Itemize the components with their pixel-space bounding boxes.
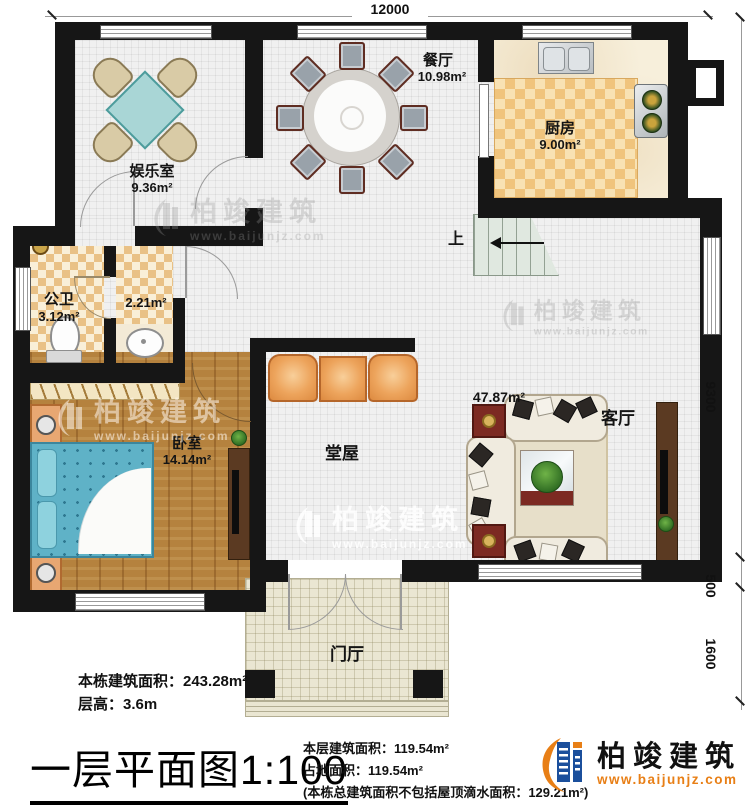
door-leaf bbox=[400, 574, 402, 629]
cushion bbox=[471, 497, 492, 518]
door-leaf bbox=[74, 276, 110, 278]
dimension-tick bbox=[47, 10, 57, 20]
room-label-foyer: 门厅 bbox=[287, 646, 407, 665]
column bbox=[413, 670, 443, 698]
window bbox=[478, 564, 642, 580]
dimension-tick bbox=[735, 582, 745, 592]
plant bbox=[531, 461, 563, 493]
room-area-storage: 2.21m² bbox=[86, 296, 206, 310]
plan-title: 一层平面图1:100 bbox=[30, 736, 348, 805]
stairs-up-label: 上 bbox=[440, 231, 472, 249]
chair bbox=[339, 166, 365, 194]
wall bbox=[55, 22, 75, 230]
dining-table-center bbox=[340, 106, 364, 130]
door-leaf bbox=[288, 574, 290, 629]
total-floor-area: 本栋建筑面积：243.28m² bbox=[78, 670, 247, 693]
room-area-dining: 10.98m² bbox=[382, 70, 502, 84]
wall bbox=[104, 246, 116, 277]
dimension-top: 12000 bbox=[352, 1, 428, 17]
plant bbox=[658, 516, 674, 532]
room-area-bedroom: 14.14m² bbox=[127, 453, 247, 467]
stairs-arrow-head bbox=[490, 237, 501, 249]
basin-drain bbox=[141, 339, 146, 344]
stove bbox=[634, 84, 668, 138]
end-table bbox=[472, 524, 506, 558]
end-table bbox=[472, 404, 506, 438]
window bbox=[522, 25, 632, 39]
room-label-living: 客厅 bbox=[558, 410, 678, 429]
room-area-entertainment: 9.36m² bbox=[92, 181, 212, 195]
bed-blanket bbox=[78, 468, 151, 554]
dimension-tick bbox=[703, 10, 713, 20]
wall bbox=[478, 198, 700, 218]
side-table bbox=[319, 356, 367, 402]
tv bbox=[232, 470, 239, 534]
building-info-left: 本栋建筑面积：243.28m² 层高：3.6m bbox=[78, 670, 247, 717]
storey-height: 层高：3.6m bbox=[78, 693, 247, 716]
dimension-tick bbox=[735, 552, 745, 562]
room-area-living: 47.87m² bbox=[439, 390, 559, 405]
chair bbox=[400, 105, 428, 131]
bed-pillow bbox=[37, 449, 57, 497]
brand-logo: 柏竣建筑 www.baijunjz.com bbox=[535, 734, 741, 796]
window bbox=[75, 593, 205, 611]
room-label-hall: 堂屋 bbox=[282, 445, 402, 464]
wall bbox=[250, 338, 415, 352]
nightstand bbox=[30, 404, 62, 446]
dimension-right-bottom: 1600 bbox=[703, 630, 719, 678]
end-table-ornament bbox=[482, 534, 496, 548]
clock-dial bbox=[36, 563, 56, 583]
clock-dial bbox=[36, 415, 56, 435]
sink-basin bbox=[543, 47, 565, 71]
wall bbox=[668, 38, 688, 198]
armchair bbox=[368, 354, 418, 402]
room-area-bathroom: 3.12m² bbox=[0, 310, 118, 324]
wall bbox=[104, 318, 116, 366]
sink-basin bbox=[568, 47, 590, 71]
chair bbox=[339, 42, 365, 70]
floor-storage bbox=[116, 246, 173, 324]
floor-plan: 娱乐室 9.36m² 餐厅 10.98m² 厨房 9.00m² 公卫 3.12m… bbox=[0, 0, 750, 807]
dimension-line-right bbox=[741, 18, 742, 710]
sliding-door bbox=[479, 84, 489, 158]
bed-pillow bbox=[37, 501, 57, 549]
door-leaf bbox=[185, 246, 187, 298]
room-area-kitchen: 9.00m² bbox=[500, 138, 620, 152]
wall bbox=[245, 40, 263, 158]
wash-basin bbox=[126, 328, 164, 358]
coffee-table-shelf bbox=[521, 491, 573, 505]
brand-url: www.baijunjz.com bbox=[597, 772, 741, 787]
stairs-arrow-line bbox=[500, 242, 544, 244]
wall bbox=[13, 363, 185, 383]
dimension-right-top: 9300 bbox=[703, 372, 719, 422]
tv bbox=[660, 450, 668, 514]
wall bbox=[250, 560, 288, 582]
end-table-ornament bbox=[482, 414, 496, 428]
brand-logo-icon bbox=[535, 734, 587, 796]
toilet-tank bbox=[46, 350, 82, 363]
flue-opening bbox=[696, 68, 716, 98]
chair bbox=[276, 105, 304, 131]
dimension-tick bbox=[735, 696, 745, 706]
room-label-entertainment: 娱乐室 bbox=[92, 164, 212, 181]
wall bbox=[250, 352, 266, 590]
armchair bbox=[268, 354, 318, 402]
room-label-dining: 餐厅 bbox=[378, 53, 498, 70]
column bbox=[245, 670, 275, 698]
wall bbox=[173, 226, 185, 246]
kitchen-sink bbox=[538, 42, 594, 74]
burner bbox=[642, 90, 662, 110]
room-label-kitchen: 厨房 bbox=[500, 121, 620, 138]
room-label-bedroom: 卧室 bbox=[127, 436, 247, 453]
nightstand bbox=[30, 552, 62, 594]
window bbox=[100, 25, 212, 39]
window bbox=[703, 237, 721, 335]
dimension-tick bbox=[735, 12, 745, 22]
brand-name: 柏竣建筑 bbox=[597, 743, 741, 772]
wall bbox=[245, 208, 263, 246]
wall bbox=[478, 156, 494, 198]
window bbox=[297, 25, 427, 39]
burner bbox=[642, 113, 662, 133]
wall bbox=[135, 226, 263, 246]
foyer-steps bbox=[245, 700, 449, 717]
dimension-right-mid: 500 bbox=[703, 566, 719, 606]
